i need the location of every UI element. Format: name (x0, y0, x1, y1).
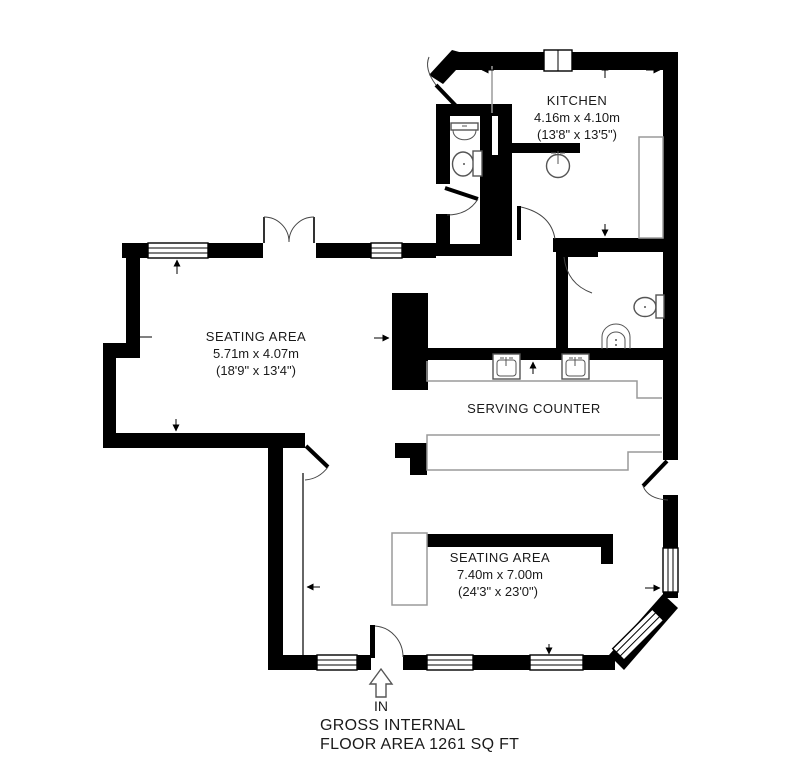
seating-structure (392, 533, 427, 605)
kitchen-door (519, 206, 555, 240)
window (148, 243, 208, 258)
wall (427, 348, 663, 360)
seating2-label: SEATING AREA (450, 550, 550, 565)
seating2-dim-imperial: (24'3" x 23'0") (458, 584, 538, 599)
wall (403, 655, 427, 670)
wc2-sink-icon (602, 324, 630, 349)
footer-line-2: FLOOR AREA 1261 SQ FT (320, 736, 519, 753)
bar-counter (427, 534, 613, 547)
kitchen-sink-icon (547, 151, 570, 178)
wall-counter-stub (506, 143, 580, 153)
wall (436, 214, 450, 244)
serving-sink-icon (493, 354, 520, 379)
wall-pillar (480, 155, 512, 256)
entrance-label: IN (374, 698, 388, 714)
wc1-sink-icon (451, 123, 478, 140)
entrance-arrow-icon (370, 669, 392, 697)
wall (316, 243, 371, 258)
labels: KITCHEN 4.16m x 4.10m (13'8" x 13'5") SE… (206, 93, 620, 753)
wall (402, 243, 436, 258)
serving-counter-label: SERVING COUNTER (467, 401, 601, 416)
wall (663, 495, 678, 548)
kitchen-dim-metric: 4.16m x 4.10m (534, 110, 620, 125)
wall (436, 244, 480, 256)
window-small-kitchen (544, 50, 572, 71)
wall-corner (395, 443, 427, 475)
wc1-door (445, 188, 478, 215)
serving-sink-icon (562, 354, 589, 379)
wall (103, 343, 116, 448)
window (663, 548, 678, 592)
window (427, 655, 473, 670)
footer-line-1: GROSS INTERNAL (320, 717, 466, 734)
window (530, 655, 583, 670)
kitchen-label: KITCHEN (547, 93, 608, 108)
floor-plan-canvas: KITCHEN 4.16m x 4.10m (13'8" x 13'5") SE… (0, 0, 804, 768)
window (371, 243, 402, 258)
wall (473, 655, 530, 670)
wc1-toilet-icon (453, 151, 483, 176)
wc2-toilet-icon (634, 295, 664, 318)
walls (103, 50, 678, 670)
seating1-dim-metric: 5.71m x 4.07m (213, 346, 299, 361)
wall-pillar (392, 293, 428, 390)
seating1-label: SEATING AREA (206, 329, 306, 344)
bar-counter (601, 547, 613, 564)
wall (268, 433, 283, 670)
seating1-dim-imperial: (18'9" x 13'4") (216, 363, 296, 378)
wall (357, 655, 371, 670)
serving-back-counter (427, 361, 662, 398)
wall (126, 243, 140, 343)
french-doors (264, 217, 314, 243)
kitchen-dim-imperial: (13'8" x 13'5") (537, 127, 617, 142)
wall (268, 655, 317, 670)
wall (583, 655, 615, 670)
serving-island-counter (427, 435, 662, 470)
wall (208, 243, 263, 258)
kitchen-counter (639, 137, 663, 238)
seating2-door (305, 446, 328, 480)
entrance-door (370, 625, 403, 658)
right-wall-door (643, 461, 668, 500)
seating2-dim-metric: 7.40m x 7.00m (457, 567, 543, 582)
floor-plan-page: KITCHEN 4.16m x 4.10m (13'8" x 13'5") SE… (0, 0, 804, 768)
window (317, 655, 357, 670)
wall (663, 52, 678, 460)
